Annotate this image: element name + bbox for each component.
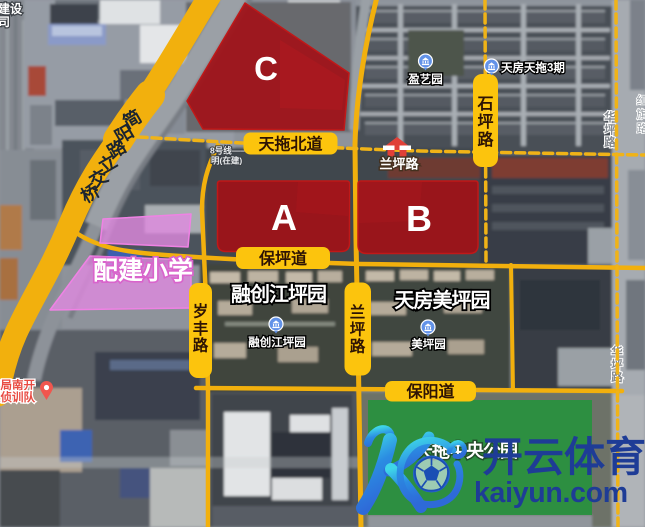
svg-text:坪: 坪 [604,124,616,137]
svg-text:kaiyun.com: kaiyun.com [474,477,628,509]
svg-text:路: 路 [350,337,366,356]
svg-text:兰: 兰 [350,303,366,322]
svg-text:红: 红 [637,94,645,107]
svg-text:天房美坪园: 天房美坪园 [395,288,490,312]
svg-text:路: 路 [604,135,616,149]
svg-text:开云体育: 开云体育 [482,434,645,480]
svg-text:保阳道: 保阳道 [405,382,454,401]
svg-text:盈艺园: 盈艺园 [407,72,443,86]
svg-text:B: B [406,198,432,239]
svg-text:石: 石 [476,96,493,113]
svg-text:融创江坪园: 融创江坪园 [248,335,306,349]
svg-text:华: 华 [604,110,616,124]
svg-text:路: 路 [637,122,645,135]
svg-text:司: 司 [0,15,10,29]
svg-text:天房天拖3期: 天房天拖3期 [501,61,565,75]
svg-text:路: 路 [477,130,494,149]
svg-text:明(在建): 明(在建) [211,156,242,166]
svg-text:路: 路 [193,336,209,355]
svg-text:兰坪路: 兰坪路 [379,157,419,172]
svg-text:区侦训队: 区侦训队 [0,390,35,404]
svg-text:8号线——: 8号线—— [210,146,249,156]
svg-text:坪: 坪 [350,321,366,339]
svg-text:岁: 岁 [193,302,209,321]
svg-text:安局南开: 安局南开 [0,378,35,392]
svg-text:丰: 丰 [193,319,209,338]
svg-text:旗: 旗 [637,107,645,121]
svg-text:C: C [254,50,278,87]
svg-text:天拖北道: 天拖北道 [258,135,322,154]
svg-text:A: A [271,197,297,238]
svg-text:建设: 建设 [0,1,23,16]
svg-text:美坪园: 美坪园 [411,337,446,351]
svg-text:融创江坪园: 融创江坪园 [231,282,326,306]
svg-text:坪: 坪 [477,113,493,131]
svg-text:保坪道: 保坪道 [258,249,307,268]
svg-text:配建小学: 配建小学 [93,256,193,285]
